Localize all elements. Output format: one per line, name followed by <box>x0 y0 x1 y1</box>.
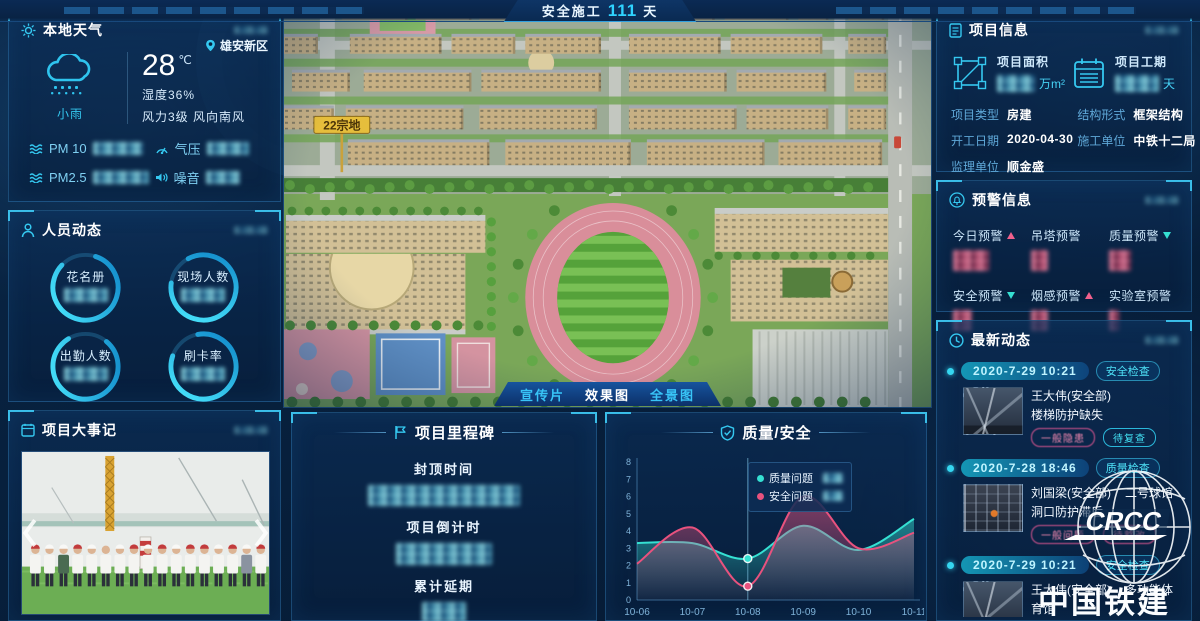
milestone-value-blurred <box>396 543 492 565</box>
events-panel-title: 项目大事记 <box>42 420 117 440</box>
ring-value-blurred <box>64 367 108 381</box>
metric-value-blurred <box>93 142 143 155</box>
cloud-rain-icon <box>42 54 98 98</box>
personnel-rings: 花名册 现场人数 出勤人数 刷卡率 <box>9 245 280 405</box>
safe-days-value: 111 <box>608 1 638 21</box>
svg-text:6: 6 <box>626 492 631 502</box>
field-start-date: 开工日期2020-04-30 <box>951 132 1073 149</box>
field-supervisor: 监理单位顺金盛 <box>951 158 1073 175</box>
noise-speaker-icon <box>155 172 168 183</box>
project-area-stat: 项目面积 万m² <box>951 53 1065 92</box>
feed-date-badge: 2020-7-28 18:46 <box>961 459 1089 477</box>
alert-value-blurred <box>1031 250 1048 271</box>
humidity-text: 湿度36% <box>142 86 245 103</box>
feed-photo-thumbnail[interactable] <box>963 581 1023 617</box>
ring-label: 出勤人数 <box>60 347 112 364</box>
header-blur-decoration <box>1145 336 1179 344</box>
divider <box>127 52 128 124</box>
chart-panel-title: 质量/安全 <box>742 422 811 443</box>
weather-panel: 本地天气 雄安新区 小雨 28 ℃ 湿度36% 风力3级 风向南风 PM 10 <box>8 10 281 202</box>
stat-unit: 天 <box>1163 75 1175 92</box>
ring-onsite: 现场人数 <box>145 249 263 326</box>
alert-value-blurred <box>1109 250 1131 271</box>
ring-label: 刷卡率 <box>181 347 225 364</box>
field-contractor: 施工单位中铁十二局 <box>1077 132 1196 149</box>
hazard-level-tag: 一般问题 <box>1031 525 1095 544</box>
project-info-title: 项目信息 <box>969 20 1029 40</box>
svg-text:10-08: 10-08 <box>735 607 761 618</box>
stat-value-blurred <box>1115 75 1159 92</box>
clock-icon <box>949 333 964 348</box>
temperature-value: 28 <box>142 51 175 81</box>
metric-value-blurred <box>206 171 240 184</box>
metric-pressure: 气压 <box>155 139 266 158</box>
ring-value-blurred <box>64 288 108 302</box>
hazard-level-tag: 一般隐患 <box>1031 428 1095 447</box>
svg-text:3: 3 <box>626 543 631 553</box>
carousel-next-arrow[interactable] <box>253 518 269 548</box>
tooltip-quality-row: 质量问题 <box>757 470 843 486</box>
weather-condition: 小雨 <box>27 105 113 122</box>
metric-label: PM2.5 <box>49 170 87 185</box>
panorama-button[interactable]: 全景图 <box>650 385 695 404</box>
metric-value-blurred <box>207 142 249 155</box>
feed-item[interactable]: 2020-7-28 18:46 质量检查 刘国梁(安全部)二号球馆 洞口防护滞后… <box>947 458 1183 544</box>
svg-text:10-10: 10-10 <box>846 607 872 618</box>
svg-text:5: 5 <box>626 509 631 519</box>
location-badge[interactable]: 雄安新区 <box>205 37 268 54</box>
person-icon <box>21 223 35 238</box>
alert-today: 今日预警 <box>953 227 1025 271</box>
divider <box>334 432 386 433</box>
personnel-panel: 人员动态 花名册 现场人数 出勤人数 刷卡率 <box>8 210 281 402</box>
milestone-panel: 项目里程碑 封顶时间 项目倒计时 累计延期 <box>291 412 597 621</box>
carousel-prev-arrow[interactable] <box>22 518 38 548</box>
safe-days-label: 安全施工 <box>542 1 602 20</box>
svg-text:10-11: 10-11 <box>902 607 924 618</box>
header-blur-decoration <box>234 226 268 234</box>
metric-label: PM 10 <box>49 141 87 156</box>
ring-attendance: 出勤人数 <box>27 328 145 405</box>
feed-photo-thumbnail[interactable] <box>963 484 1023 532</box>
project-stats: 项目面积 万m² 项目工期 天 <box>937 45 1191 94</box>
header-blur-decoration <box>234 426 268 434</box>
safe-days-banner: 安全施工 111 天 <box>504 0 697 22</box>
pm-icon <box>29 144 43 154</box>
alerts-grid: 今日预警 吊塔预警 质量预警 安全预警 烟感预警 实验室预警 <box>937 215 1191 331</box>
pm-icon <box>29 173 43 183</box>
alert-quality: 质量预警 <box>1109 227 1181 271</box>
ring-value-blurred <box>181 367 225 381</box>
ring-label: 现场人数 <box>177 268 229 285</box>
milestone-delay: 累计延期 <box>292 576 596 621</box>
field-project-type: 项目类型房建 <box>951 106 1073 123</box>
milestone-label: 封顶时间 <box>292 459 596 478</box>
milestone-items: 封顶时间 项目倒计时 累计延期 <box>292 459 596 621</box>
milestone-label: 累计延期 <box>292 576 596 595</box>
svg-text:10-06: 10-06 <box>624 607 650 618</box>
milestone-countdown: 项目倒计时 <box>292 517 596 565</box>
trend-up-icon <box>1007 232 1015 239</box>
ring-value-blurred <box>181 288 225 302</box>
feed-issue: 楼梯防护缺失 <box>1031 406 1156 425</box>
stat-label: 项目工期 <box>1115 53 1175 70</box>
calendar-icon <box>1071 55 1107 91</box>
feed-date-badge: 2020-7-29 10:21 <box>961 362 1089 380</box>
alert-value-blurred <box>953 250 989 271</box>
milestone-label: 项目倒计时 <box>292 517 596 536</box>
project-duration-stat: 项目工期 天 <box>1071 53 1185 92</box>
promo-video-button[interactable]: 宣传片 <box>520 385 565 404</box>
svg-text:2: 2 <box>626 561 631 571</box>
location-label: 雄安新区 <box>220 37 268 54</box>
render-view-button[interactable]: 效果图 <box>585 385 630 404</box>
ring-label: 花名册 <box>64 268 108 285</box>
header-blur-decoration <box>1145 196 1179 204</box>
view-switcher: 宣传片 效果图 全景图 <box>494 382 721 406</box>
feed-type-badge: 质量检查 <box>1096 458 1160 478</box>
svg-text:1: 1 <box>626 578 631 588</box>
metric-pm10: PM 10 <box>29 139 149 158</box>
safety-dot-icon <box>757 493 764 500</box>
feed-panel-title: 最新动态 <box>971 330 1031 350</box>
alerts-panel-title: 预警信息 <box>972 190 1032 210</box>
alerts-panel: 预警信息 今日预警 吊塔预警 质量预警 安全预警 烟感预警 实验室预警 <box>936 180 1192 312</box>
weather-current: 小雨 28 ℃ 湿度36% 风力3级 风向南风 <box>9 45 280 125</box>
divider <box>661 432 713 433</box>
feed-location: 二号球馆 <box>1125 486 1173 500</box>
trend-down-icon <box>1163 232 1171 239</box>
quality-safety-chart[interactable]: 01234567810-0610-0710-0810-0910-1010-11 … <box>606 450 926 621</box>
top-bar-decoration-left <box>64 7 364 14</box>
timeline-dot <box>947 465 954 472</box>
pressure-icon <box>155 143 169 154</box>
metric-pm25: PM2.5 <box>29 168 149 187</box>
weather-metrics: PM 10 气压 PM2.5 噪音 <box>9 125 280 187</box>
stat-unit: 万m² <box>1039 75 1065 92</box>
weather-panel-title: 本地天气 <box>43 20 103 40</box>
personnel-panel-title: 人员动态 <box>42 220 102 240</box>
feed-inspector: 王大伟(安全部) <box>1031 389 1111 403</box>
milestone-value-blurred <box>368 485 520 506</box>
top-bar: 安全施工 111 天 <box>0 0 1200 22</box>
milestone-value-blurred <box>422 602 466 621</box>
tooltip-value-blurred <box>823 473 843 483</box>
svg-text:0: 0 <box>626 595 631 605</box>
feed-type-badge: 安全检查 <box>1096 361 1160 381</box>
top-bar-decoration-right <box>836 7 1136 14</box>
metric-label: 噪音 <box>174 168 200 187</box>
trend-up-icon <box>1085 292 1093 299</box>
feed-list: 2020-7-29 10:21 安全检查 王大伟(安全部) 楼梯防护缺失 一般隐… <box>937 355 1191 617</box>
status-tag: 待复查 <box>1103 428 1156 447</box>
svg-text:8: 8 <box>626 457 631 467</box>
feed-photo-thumbnail[interactable] <box>963 387 1023 435</box>
svg-text:10-09: 10-09 <box>790 607 816 618</box>
feed-type-badge: 安全检查 <box>1096 555 1160 575</box>
svg-text:10-07: 10-07 <box>680 607 706 618</box>
safe-days-unit: 天 <box>643 1 658 20</box>
field-structure-type: 结构形式框架结构 <box>1077 106 1196 123</box>
tooltip-series-label: 质量问题 <box>769 470 813 486</box>
temperature-unit: ℃ <box>178 53 191 67</box>
chart-tooltip: 质量问题 安全问题 <box>748 462 852 512</box>
area-icon <box>951 54 989 92</box>
document-icon <box>949 23 962 38</box>
feed-issue: 洞口防护滞后 <box>1031 503 1173 522</box>
feed-panel: 最新动态 2020-7-29 10:21 安全检查 王大伟(安全部) 楼梯防护缺… <box>936 320 1192 621</box>
metric-noise: 噪音 <box>155 168 266 187</box>
sun-gear-icon <box>21 23 36 38</box>
stat-value-blurred <box>997 75 1035 92</box>
quality-dot-icon <box>757 475 764 482</box>
wind-text: 风力3级 风向南风 <box>142 108 245 125</box>
milestone-topping-time: 封顶时间 <box>292 459 596 506</box>
tooltip-series-label: 安全问题 <box>769 488 813 504</box>
feed-date-badge: 2020-7-29 10:21 <box>961 556 1089 574</box>
ring-roster: 花名册 <box>27 249 145 326</box>
project-fields: 项目类型房建 结构形式框架结构 开工日期2020-04-30 施工单位中铁十二局… <box>937 94 1191 175</box>
city-render-canvas: 22宗地 <box>284 1 931 407</box>
metric-label: 气压 <box>175 139 201 158</box>
tooltip-safety-row: 安全问题 <box>757 488 843 504</box>
feed-inspector: 王大伟(安全部) <box>1031 583 1111 597</box>
timeline-dot <box>947 562 954 569</box>
feed-inspector: 刘国梁(安全部) <box>1031 486 1111 500</box>
metric-value-blurred <box>93 171 149 184</box>
svg-text:4: 4 <box>626 526 631 536</box>
header-blur-decoration <box>1145 26 1179 34</box>
timeline-dot <box>947 368 954 375</box>
tooltip-value-blurred <box>823 491 843 501</box>
ring-swipe-rate: 刷卡率 <box>145 328 263 405</box>
svg-text:7: 7 <box>626 474 631 484</box>
stat-label: 项目面积 <box>997 53 1065 70</box>
status-tag: 待整改 <box>1103 525 1156 544</box>
calendar-note-icon <box>21 423 35 437</box>
alert-crane: 吊塔预警 <box>1031 227 1103 271</box>
site-3d-render[interactable]: 22宗地 宣传片 效果图 全景图 <box>283 0 932 408</box>
milestone-photo[interactable] <box>21 451 270 615</box>
location-pin-icon <box>205 39 216 52</box>
divider <box>819 432 871 433</box>
trend-down-icon <box>1007 292 1015 299</box>
events-panel: 项目大事记 <box>8 410 281 621</box>
project-info-panel: 项目信息 项目面积 万m² 项目工期 天 项目类型房建 结构形式框架结构 开工日… <box>936 10 1192 172</box>
divider <box>502 432 554 433</box>
shield-check-icon <box>720 425 735 441</box>
feed-item[interactable]: 2020-7-29 10:21 安全检查 王大伟(安全部) 楼梯防护缺失 一般隐… <box>947 361 1183 447</box>
header-blur-decoration <box>234 26 268 34</box>
flag-icon <box>393 425 408 440</box>
feed-item[interactable]: 2020-7-29 10:21 安全检查 王大伟(安全部)多功能体育馆 楼梯防护… <box>947 555 1183 617</box>
alarm-bell-icon <box>949 192 965 208</box>
milestone-panel-title: 项目里程碑 <box>415 422 495 443</box>
quality-safety-panel: 质量/安全 01234567810-0610-0710-0810-0910-10… <box>605 412 927 621</box>
